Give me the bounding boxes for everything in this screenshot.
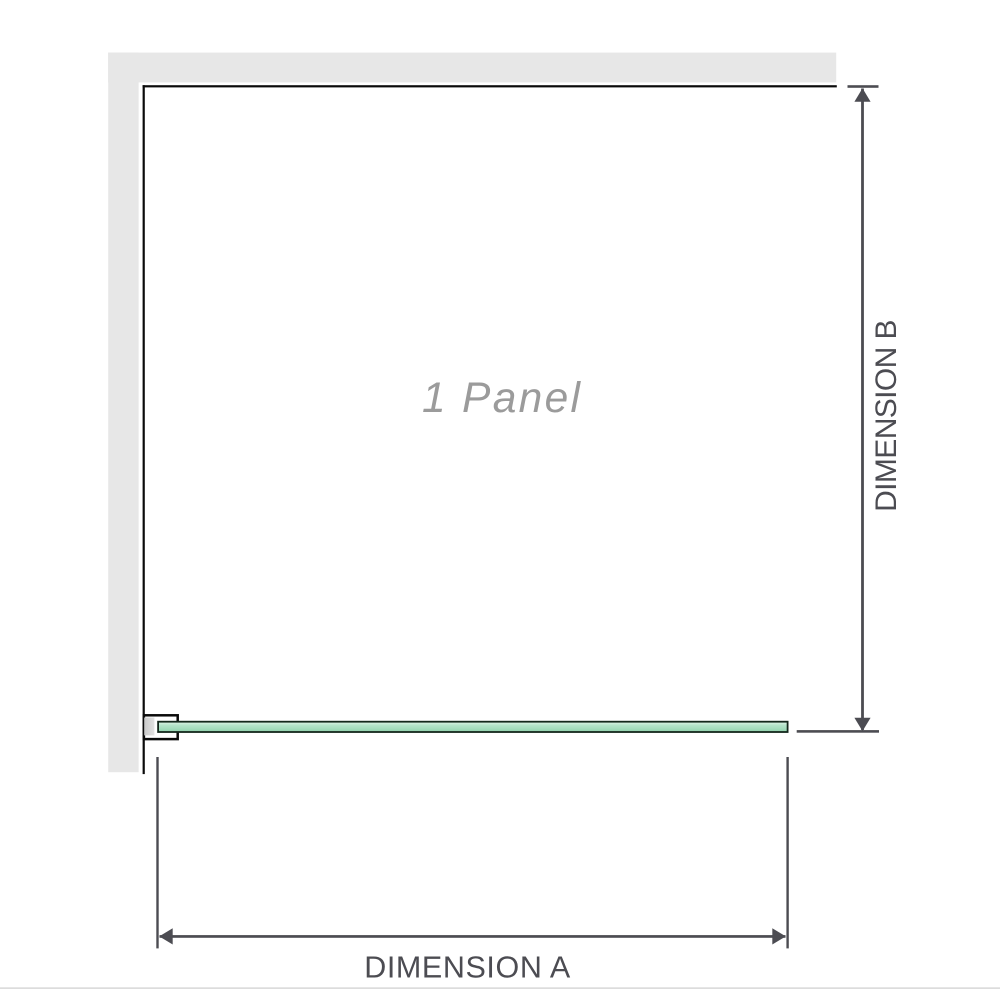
svg-text:1 Panel: 1 Panel bbox=[422, 375, 582, 422]
svg-text:DIMENSION A: DIMENSION A bbox=[364, 950, 571, 984]
svg-text:DIMENSION B: DIMENSION B bbox=[870, 320, 903, 512]
